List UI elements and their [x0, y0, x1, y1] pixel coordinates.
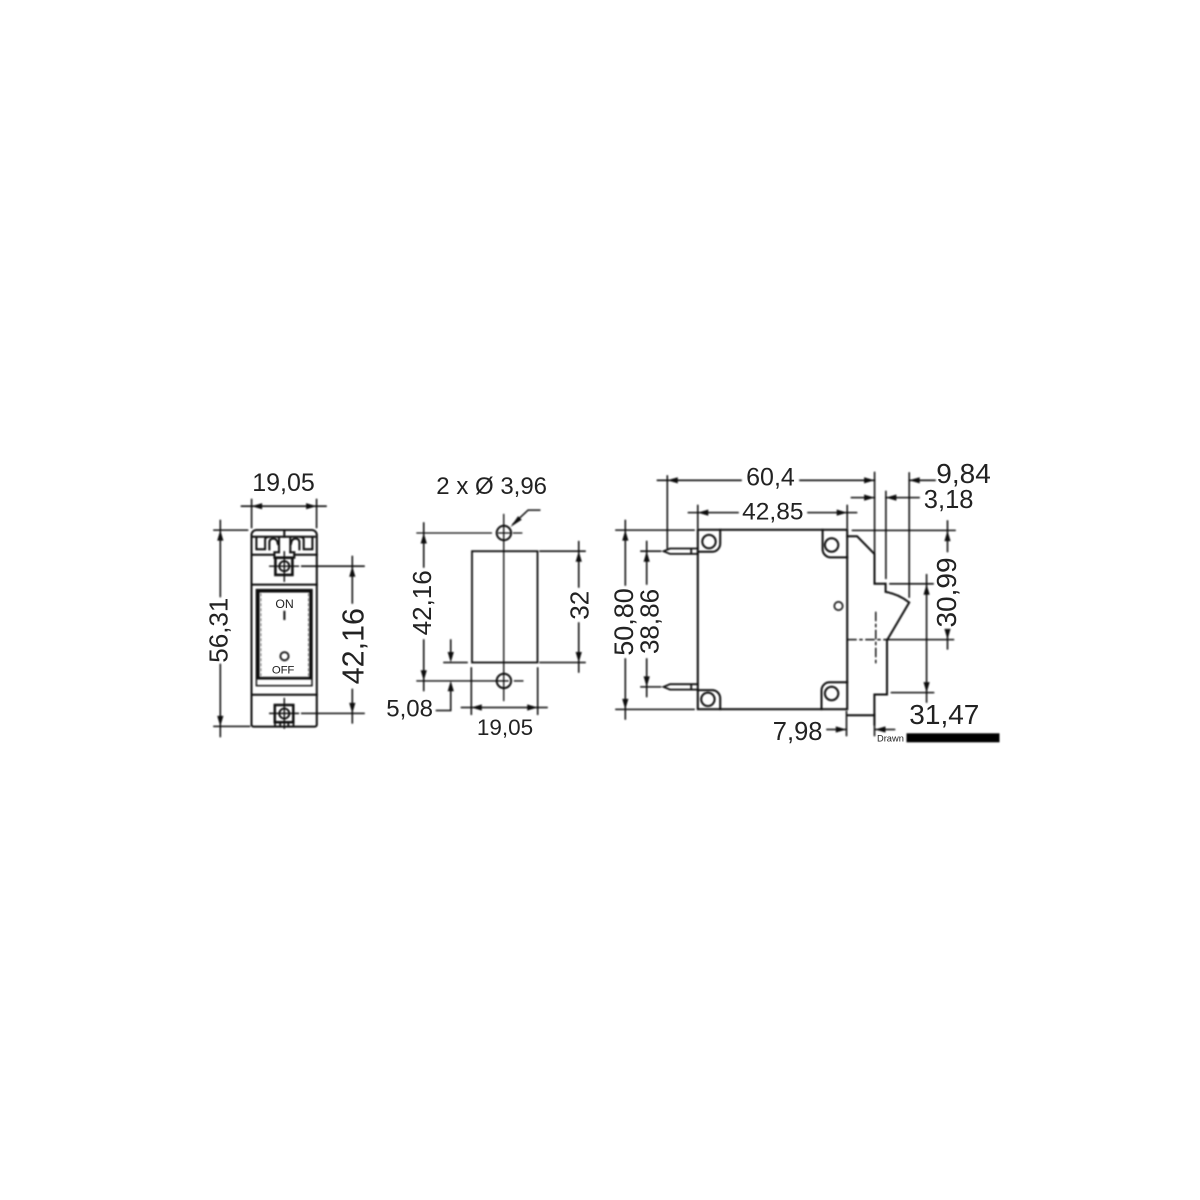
svg-text:7,98: 7,98: [773, 718, 823, 746]
svg-text:30,99: 30,99: [931, 557, 962, 627]
svg-text:56,31: 56,31: [204, 598, 234, 663]
svg-text:42,85: 42,85: [742, 499, 803, 526]
svg-text:9,84: 9,84: [936, 458, 991, 489]
svg-text:ON: ON: [275, 597, 293, 611]
svg-text:OFF: OFF: [272, 664, 294, 676]
svg-text:Drawn: Drawn: [877, 734, 904, 744]
svg-text:32: 32: [564, 591, 594, 620]
svg-text:38,86: 38,86: [635, 589, 665, 654]
svg-text:42,16: 42,16: [336, 608, 370, 684]
svg-text:5,08: 5,08: [386, 695, 433, 722]
svg-text:19,05: 19,05: [477, 715, 533, 740]
svg-text:42,16: 42,16: [407, 570, 437, 635]
svg-text:19,05: 19,05: [252, 469, 315, 497]
svg-text:2 x Ø 3,96: 2 x Ø 3,96: [436, 473, 547, 500]
svg-text:31,47: 31,47: [909, 699, 979, 730]
svg-text:3,18: 3,18: [924, 486, 974, 514]
svg-text:60,4: 60,4: [746, 463, 795, 491]
